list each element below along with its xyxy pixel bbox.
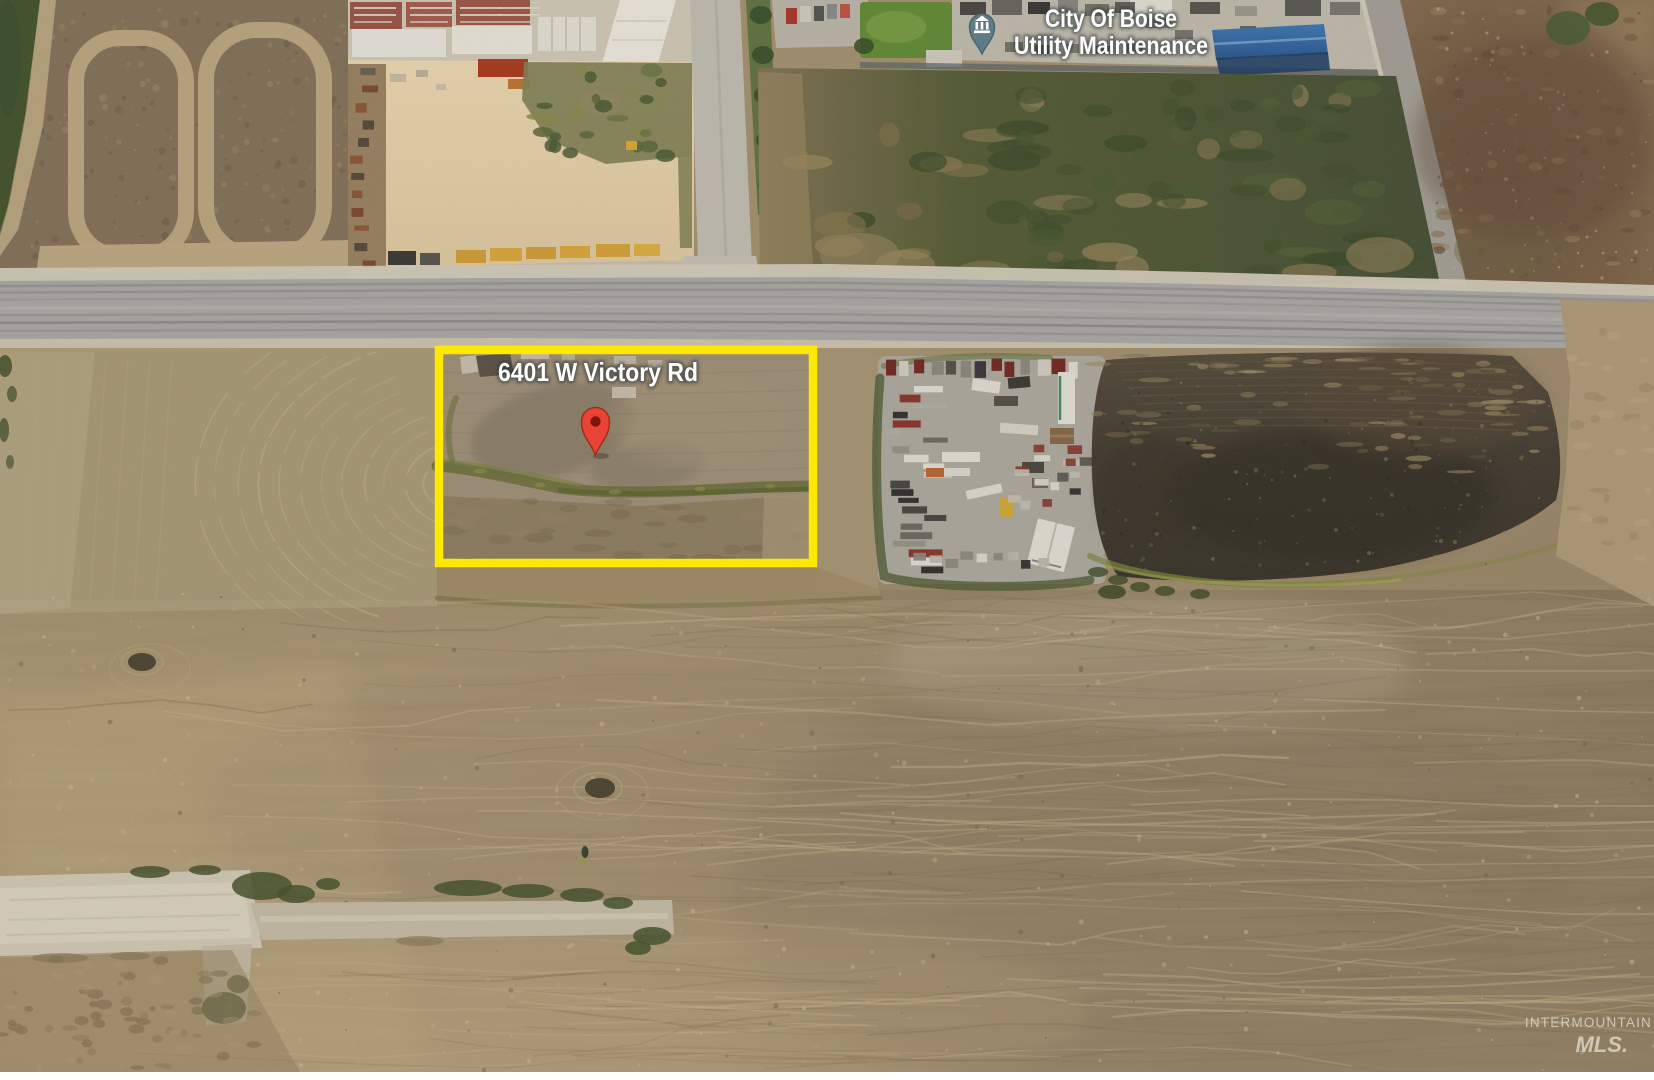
svg-text:Utility Maintenance: Utility Maintenance <box>1014 32 1208 60</box>
svg-text:MLS.: MLS. <box>1575 1032 1628 1057</box>
svg-text:6401 W Victory Rd: 6401 W Victory Rd <box>498 357 698 387</box>
svg-text:City Of Boise: City Of Boise <box>1045 5 1177 33</box>
svg-text:INTERMOUNTAIN: INTERMOUNTAIN <box>1525 1015 1652 1030</box>
